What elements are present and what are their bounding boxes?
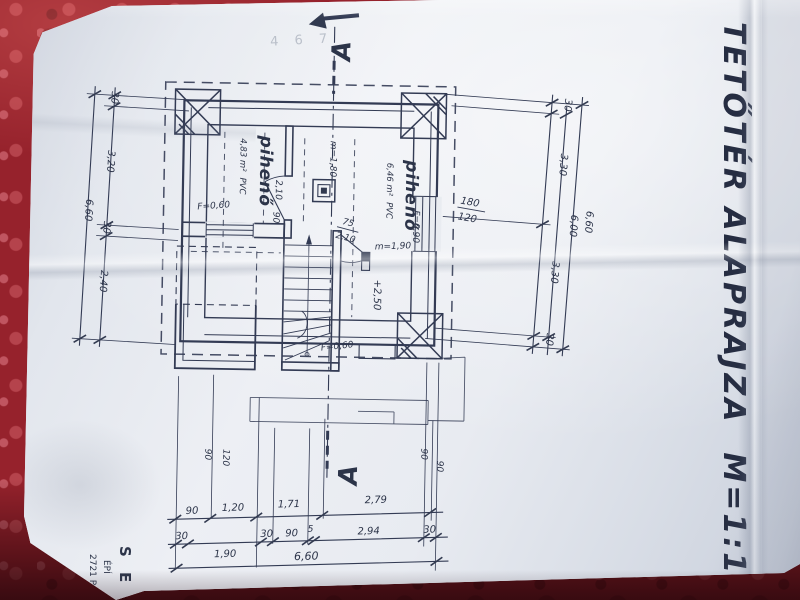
blueprint-paper: A A pihenő 4,83 m²PVC pihenő 6,46 m²PVC … — [0, 0, 800, 600]
paper-edge-shadow — [0, 0, 800, 600]
